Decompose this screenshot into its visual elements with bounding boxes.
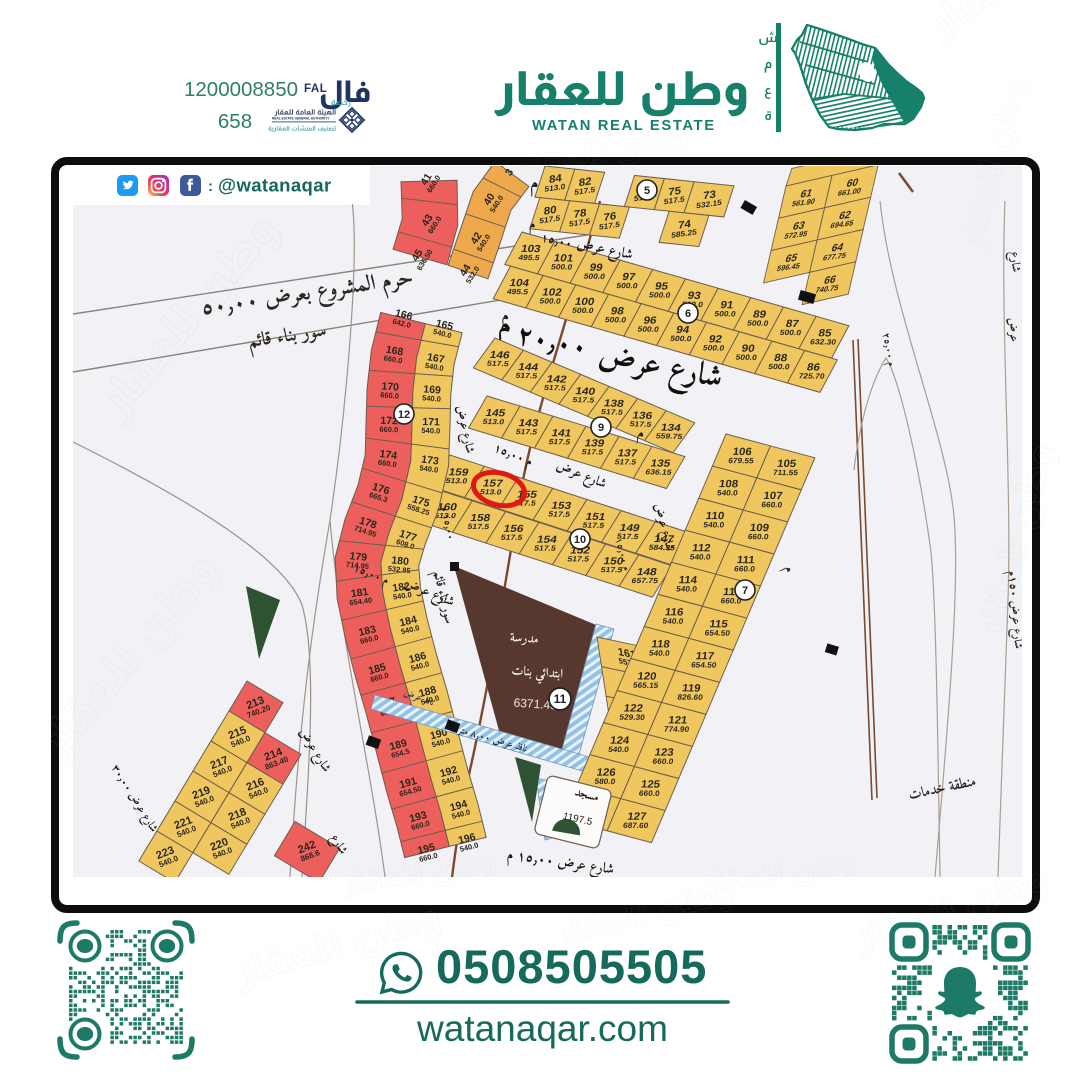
svg-text:500.0: 500.0 <box>648 291 671 300</box>
svg-text:529.30: 529.30 <box>619 713 646 722</box>
svg-text:513.0: 513.0 <box>479 488 503 497</box>
svg-text::: : <box>208 178 213 195</box>
svg-text:540.0: 540.0 <box>662 617 684 626</box>
svg-text:660.0: 660.0 <box>761 500 783 509</box>
svg-text:687.60: 687.60 <box>622 821 649 830</box>
svg-text:500.0: 500.0 <box>616 281 639 290</box>
svg-text:500.0: 500.0 <box>571 306 594 315</box>
svg-text:540.0: 540.0 <box>689 553 711 562</box>
svg-text:540.0: 540.0 <box>703 521 725 530</box>
svg-text:657.75: 657.75 <box>631 577 660 585</box>
svg-text:500.0: 500.0 <box>604 316 627 325</box>
svg-text:500.0: 500.0 <box>637 325 660 334</box>
svg-text:774.90: 774.90 <box>663 725 690 734</box>
svg-text:540.0: 540.0 <box>421 426 440 436</box>
svg-text:517.5: 517.5 <box>533 544 557 552</box>
svg-text:540.0: 540.0 <box>676 585 698 594</box>
svg-text:517.5: 517.5 <box>515 428 539 437</box>
svg-text:513.0: 513.0 <box>445 477 469 486</box>
svg-text:517.5: 517.5 <box>572 396 596 405</box>
svg-text:679.55: 679.55 <box>728 456 755 465</box>
svg-text:495.5: 495.5 <box>506 288 529 297</box>
svg-text:660.0: 660.0 <box>380 390 399 400</box>
svg-text:12: 12 <box>398 409 410 421</box>
svg-text:826.60: 826.60 <box>677 693 704 702</box>
svg-text:517.5: 517.5 <box>567 555 591 563</box>
svg-text:500.0: 500.0 <box>714 310 737 319</box>
svg-text:500.0: 500.0 <box>550 263 573 272</box>
svg-text:654.50: 654.50 <box>704 629 731 638</box>
svg-text:517.5: 517.5 <box>600 566 624 574</box>
svg-text:540.0: 540.0 <box>648 649 670 658</box>
svg-text:517.5: 517.5 <box>629 420 653 429</box>
svg-text:10: 10 <box>574 534 586 546</box>
svg-text:517.5: 517.5 <box>614 458 638 467</box>
svg-text:517.5: 517.5 <box>467 522 491 530</box>
svg-text:725.70: 725.70 <box>798 372 826 381</box>
svg-text:559.75: 559.75 <box>655 432 684 441</box>
svg-text:500.0: 500.0 <box>702 344 725 353</box>
svg-text:9: 9 <box>598 422 604 434</box>
svg-text:6: 6 <box>685 308 691 320</box>
svg-text:513.0: 513.0 <box>482 417 506 426</box>
svg-text:660.0: 660.0 <box>379 425 398 435</box>
svg-text:517.5: 517.5 <box>543 384 567 393</box>
svg-text:500.0: 500.0 <box>768 362 791 371</box>
svg-text:565.15: 565.15 <box>632 681 659 690</box>
svg-text:660.0: 660.0 <box>747 532 769 541</box>
svg-text:660.0: 660.0 <box>638 789 660 798</box>
svg-text:517.5: 517.5 <box>581 448 605 457</box>
svg-text:540.0: 540.0 <box>422 393 441 403</box>
svg-text:517.5: 517.5 <box>500 533 524 541</box>
svg-text:495.5: 495.5 <box>518 253 541 262</box>
svg-text:7: 7 <box>742 585 748 597</box>
svg-text:540.0: 540.0 <box>608 745 630 754</box>
svg-text:500.0: 500.0 <box>669 334 692 343</box>
svg-text:540.0: 540.0 <box>716 489 738 498</box>
svg-text:660.0: 660.0 <box>652 757 674 766</box>
svg-text:580.0: 580.0 <box>594 777 616 786</box>
svg-text:500.0: 500.0 <box>583 272 606 281</box>
svg-text:517.5: 517.5 <box>600 408 624 417</box>
svg-text:517.5: 517.5 <box>582 521 606 530</box>
svg-text:500.0: 500.0 <box>735 353 758 362</box>
svg-text:500.0: 500.0 <box>539 297 562 306</box>
svg-text:500.0: 500.0 <box>746 319 769 328</box>
svg-text:11: 11 <box>554 692 567 706</box>
svg-text:500.0: 500.0 <box>779 328 802 337</box>
svg-text:517.5: 517.5 <box>616 532 640 541</box>
svg-text:@watanaqar: @watanaqar <box>218 175 332 196</box>
svg-text:636.15: 636.15 <box>645 468 673 477</box>
svg-text:517.5: 517.5 <box>547 510 571 519</box>
svg-text:654.50: 654.50 <box>691 661 718 670</box>
svg-text:517.5: 517.5 <box>548 438 572 447</box>
svg-text:632.30: 632.30 <box>809 338 837 347</box>
svg-text:660.0: 660.0 <box>734 565 756 574</box>
svg-text:5: 5 <box>644 185 650 197</box>
svg-text:517.5: 517.5 <box>515 371 539 380</box>
svg-text:517.5: 517.5 <box>486 359 510 368</box>
svg-text:711.55: 711.55 <box>772 468 799 477</box>
